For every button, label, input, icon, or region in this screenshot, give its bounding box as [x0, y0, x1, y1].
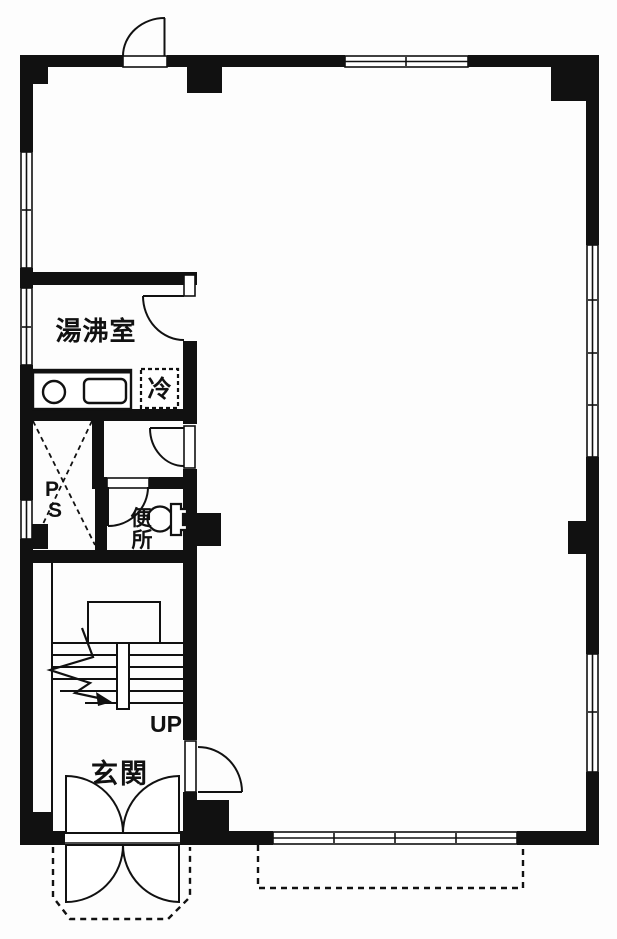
wall-segment [149, 477, 197, 489]
pipe-space-label-p: P [45, 478, 59, 501]
toilet-label-char1: 便 [131, 506, 153, 530]
column-toilet-right [197, 513, 221, 546]
wall-segment [20, 539, 33, 845]
kitchenette-label: 湯沸室 [55, 316, 136, 346]
window-top [345, 56, 468, 67]
wall-segment [20, 55, 33, 152]
column-top-middle [187, 67, 222, 93]
window-left-ps [21, 500, 32, 539]
stove [84, 379, 126, 403]
refrigerator-label: 冷 [148, 375, 172, 403]
wall-segment [167, 55, 345, 67]
column-bottom-left [20, 812, 53, 845]
window-bottom [273, 832, 517, 844]
wall-segment [586, 457, 599, 654]
entrance-label: 玄関 [91, 758, 149, 789]
sink [43, 381, 65, 403]
wall-ps-right [92, 421, 104, 477]
floorplan-page: 湯沸室 冷 P S 便 所 UP 玄関 [0, 0, 617, 939]
window-left-upper [21, 152, 32, 268]
toilet-fixture [148, 504, 188, 535]
pipe-space-label-s: S [48, 499, 62, 522]
stairs-up-label: UP [150, 711, 182, 737]
stair-rail [117, 643, 129, 709]
wall-segment [586, 56, 599, 245]
wall-kitchenette-top [20, 272, 197, 285]
column-right-middle [568, 521, 599, 554]
toilet-label-char2: 所 [132, 529, 153, 552]
window-right-lower [587, 654, 598, 772]
window-left-kitchenette [21, 288, 32, 365]
wall-stairs-top [20, 550, 197, 563]
column-entrance-right [183, 800, 229, 845]
wall-segment [20, 365, 33, 500]
window-right-upper [587, 245, 598, 457]
wall-segment [517, 831, 599, 845]
wall-toilet-left [95, 477, 107, 551]
wall-kitchenette-bottom [20, 409, 197, 421]
floorplan-drawing: 湯沸室 冷 P S 便 所 UP 玄関 [0, 0, 617, 939]
